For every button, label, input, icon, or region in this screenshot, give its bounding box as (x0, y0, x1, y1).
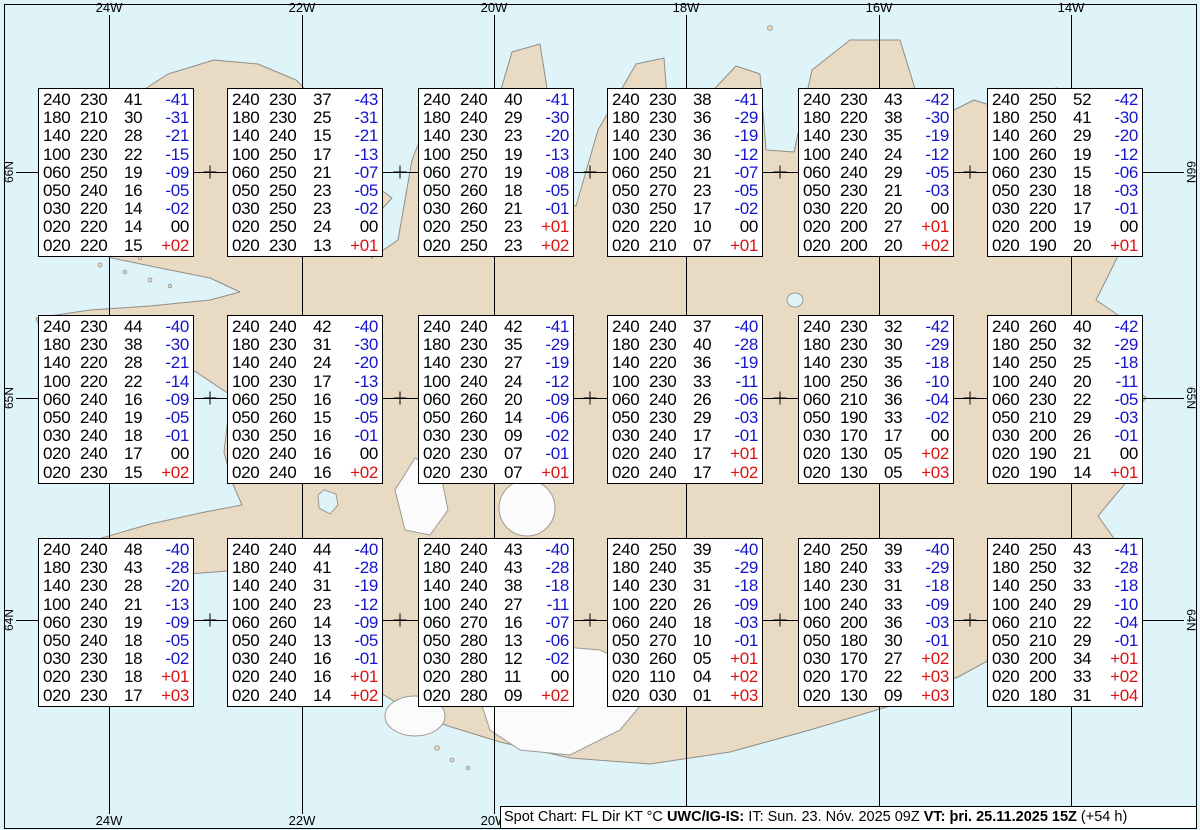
spot-table-row: 18023030-29 (803, 336, 949, 354)
spot-table-row: 14024015-21 (232, 127, 378, 145)
wind-direction: 210 (840, 391, 884, 409)
wind-direction: 240 (80, 391, 124, 409)
temperature-c: -07 (532, 614, 569, 632)
temperature-c: -29 (721, 109, 758, 127)
wind-direction: 230 (460, 336, 504, 354)
footer-text-segment: (+54 h) (1077, 809, 1127, 825)
graticule-cross-marker (204, 614, 217, 627)
wind-speed-kt: 16 (313, 427, 341, 445)
graticule-cross-marker (964, 614, 977, 627)
wind-direction: 220 (80, 218, 124, 236)
temperature-c: -18 (721, 577, 758, 595)
temperature-c: -29 (912, 336, 949, 354)
spot-table: 24023044-4018023038-3014022028-211002202… (38, 315, 194, 484)
temperature-c: -40 (532, 541, 569, 559)
wind-speed-kt: 21 (693, 164, 721, 182)
temperature-c: -28 (1101, 559, 1138, 577)
wind-speed-kt: 33 (693, 373, 721, 391)
spot-table-row: 18023035-29 (423, 336, 569, 354)
spot-table-row: 18023031-30 (232, 336, 378, 354)
flight-level: 060 (612, 391, 649, 409)
temperature-c: -05 (152, 409, 189, 427)
wind-direction: 240 (269, 668, 313, 686)
temperature-c: +02 (721, 464, 758, 482)
wind-speed-kt: 17 (124, 687, 152, 705)
flight-level: 030 (423, 650, 460, 668)
flight-level: 100 (612, 146, 649, 164)
wind-direction: 260 (649, 650, 693, 668)
wind-direction: 250 (460, 218, 504, 236)
wind-direction: 270 (460, 614, 504, 632)
flight-level: 050 (992, 409, 1029, 427)
flight-level: 050 (992, 632, 1029, 650)
longitude-label-top: 22W (287, 1, 318, 15)
temperature-c: +02 (341, 464, 378, 482)
spot-table-row: 10023022-15 (43, 146, 189, 164)
flight-level: 030 (43, 200, 80, 218)
spot-table-row: 24025039-40 (803, 541, 949, 559)
temperature-c: -04 (912, 391, 949, 409)
spot-table-row: 06026014-09 (232, 614, 378, 632)
temperature-c: -31 (152, 109, 189, 127)
spot-table-row: 03023018-02 (43, 650, 189, 668)
spot-table-row: 14023031-18 (612, 577, 758, 595)
wind-direction: 230 (460, 127, 504, 145)
wind-direction: 240 (840, 146, 884, 164)
wind-direction: 240 (840, 596, 884, 614)
temperature-c: -40 (721, 318, 758, 336)
wind-speed-kt: 17 (693, 464, 721, 482)
flight-level: 020 (803, 687, 840, 705)
wind-direction: 230 (1029, 391, 1073, 409)
temperature-c: -01 (721, 632, 758, 650)
flight-level: 100 (992, 373, 1029, 391)
wind-direction: 240 (269, 559, 313, 577)
wind-direction: 230 (1029, 164, 1073, 182)
flight-level: 020 (992, 445, 1029, 463)
temperature-c: -05 (532, 182, 569, 200)
spot-table-row: 05021029-01 (992, 632, 1138, 650)
spot-table-row: 03025023-02 (232, 200, 378, 218)
wind-speed-kt: 31 (693, 577, 721, 595)
temperature-c: -18 (532, 577, 569, 595)
flight-level: 180 (612, 336, 649, 354)
spot-table-row: 05023018-03 (992, 182, 1138, 200)
wind-speed-kt: 15 (1073, 164, 1101, 182)
spot-table-row: 06024016-09 (43, 391, 189, 409)
flight-level: 060 (43, 391, 80, 409)
temperature-c: -10 (1101, 596, 1138, 614)
spot-table-row: 02020020+02 (803, 237, 949, 255)
wind-speed-kt: 35 (693, 559, 721, 577)
wind-speed-kt: 17 (1073, 200, 1101, 218)
temperature-c: -01 (341, 650, 378, 668)
wind-direction: 240 (840, 164, 884, 182)
spot-table-row: 14024024-20 (232, 354, 378, 372)
flight-level: 100 (232, 596, 269, 614)
spot-table-row: 24023038-41 (612, 91, 758, 109)
graticule-cross-marker (774, 614, 787, 627)
flight-level: 030 (612, 650, 649, 668)
wind-speed-kt: 37 (313, 91, 341, 109)
spot-table: 24024040-4118024029-3014023023-201002501… (418, 88, 574, 257)
temperature-c: +02 (912, 650, 949, 668)
wind-direction: 210 (649, 237, 693, 255)
wind-speed-kt: 14 (124, 218, 152, 236)
spot-table: 24024048-4018023043-2814023028-201002402… (38, 538, 194, 707)
temperature-c: +02 (152, 237, 189, 255)
temperature-c: -31 (341, 109, 378, 127)
wind-direction: 250 (269, 164, 313, 182)
latitude-label-left: 65N (2, 386, 16, 410)
spot-table-row: 05023021-03 (803, 182, 949, 200)
footer-text-segment: VT: þri. 25.11.2025 15Z (924, 809, 1077, 825)
flight-level: 100 (43, 373, 80, 391)
temperature-c: -13 (532, 146, 569, 164)
spot-table-row: 03020034+01 (992, 650, 1138, 668)
spot-table-row: 03020026-01 (992, 427, 1138, 445)
flight-level: 240 (803, 318, 840, 336)
flight-level: 020 (992, 668, 1029, 686)
wind-speed-kt: 35 (884, 354, 912, 372)
temperature-c: +02 (152, 464, 189, 482)
temperature-c: -04 (1101, 614, 1138, 632)
spot-table-row: 10024033-09 (803, 596, 949, 614)
wind-speed-kt: 24 (504, 373, 532, 391)
flight-level: 180 (992, 109, 1029, 127)
spot-table: 24025039-4018024033-2914023031-181002403… (798, 538, 954, 707)
wind-direction: 230 (80, 464, 124, 482)
spot-table-row: 02013009+03 (803, 687, 949, 705)
wind-direction: 230 (460, 445, 504, 463)
spot-table: 24025043-4118025032-2814025033-181002402… (987, 538, 1143, 707)
flight-level: 180 (232, 336, 269, 354)
wind-direction: 230 (80, 559, 124, 577)
spot-table-row: 05028013-06 (423, 632, 569, 650)
flight-level: 020 (423, 218, 460, 236)
spot-table-row: 02024016+02 (232, 464, 378, 482)
temperature-c: +02 (532, 237, 569, 255)
wind-direction: 240 (840, 559, 884, 577)
flight-level: 100 (612, 373, 649, 391)
spot-table-row: 0201902100 (992, 445, 1138, 463)
wind-speed-kt: 18 (124, 632, 152, 650)
wind-direction: 260 (1029, 146, 1073, 164)
wind-direction: 210 (1029, 614, 1073, 632)
temperature-c: -14 (152, 373, 189, 391)
spot-table-row: 03026005+01 (612, 650, 758, 668)
wind-speed-kt: 21 (504, 200, 532, 218)
flight-level: 020 (232, 218, 269, 236)
wind-direction: 220 (80, 354, 124, 372)
wind-speed-kt: 16 (124, 391, 152, 409)
wind-speed-kt: 36 (693, 127, 721, 145)
spot-table-row: 03025017-02 (612, 200, 758, 218)
flight-level: 050 (803, 632, 840, 650)
wind-speed-kt: 17 (124, 445, 152, 463)
wind-speed-kt: 17 (313, 373, 341, 391)
wind-direction: 240 (80, 409, 124, 427)
temperature-c: -07 (721, 164, 758, 182)
spot-table-row: 24025052-42 (992, 91, 1138, 109)
flight-level: 030 (992, 650, 1029, 668)
wind-direction: 230 (649, 127, 693, 145)
spot-table-row: 0202201000 (612, 218, 758, 236)
spot-table-row: 14022036-19 (612, 354, 758, 372)
spot-table-row: 06021036-04 (803, 391, 949, 409)
wind-speed-kt: 29 (693, 409, 721, 427)
flight-level: 100 (803, 596, 840, 614)
wind-speed-kt: 36 (693, 109, 721, 127)
flight-level: 060 (43, 164, 80, 182)
wind-direction: 250 (649, 164, 693, 182)
spot-table-row: 02022015+02 (43, 237, 189, 255)
wind-speed-kt: 33 (884, 409, 912, 427)
wind-direction: 200 (1029, 427, 1073, 445)
temperature-c: -13 (341, 373, 378, 391)
spot-table-row: 24024042-40 (232, 318, 378, 336)
wind-direction: 250 (269, 182, 313, 200)
wind-speed-kt: 18 (693, 614, 721, 632)
spot-table-row: 24025043-41 (992, 541, 1138, 559)
wind-speed-kt: 18 (1073, 182, 1101, 200)
wind-direction: 240 (80, 182, 124, 200)
wind-direction: 260 (269, 409, 313, 427)
wind-speed-kt: 17 (693, 427, 721, 445)
temperature-c: 00 (1101, 218, 1138, 236)
spot-table-row: 14023031-18 (803, 577, 949, 595)
wind-direction: 280 (460, 650, 504, 668)
flight-level: 140 (992, 354, 1029, 372)
latitude-label-right: 64N (1184, 608, 1198, 632)
temperature-c: 00 (912, 200, 949, 218)
temperature-c: -11 (1101, 373, 1138, 391)
temperature-c: -21 (152, 127, 189, 145)
spot-table-row: 24024044-40 (232, 541, 378, 559)
flight-level: 030 (232, 650, 269, 668)
wind-direction: 250 (1029, 91, 1073, 109)
flight-level: 060 (992, 164, 1029, 182)
wind-speed-kt: 16 (504, 614, 532, 632)
temperature-c: -42 (912, 91, 949, 109)
wind-speed-kt: 22 (124, 146, 152, 164)
spot-table-row: 10024029-10 (992, 596, 1138, 614)
graticule-cross-marker (584, 166, 597, 179)
temperature-c: -42 (1101, 318, 1138, 336)
spot-table-row: 10023033-11 (612, 373, 758, 391)
latitude-label-left: 66N (2, 160, 16, 184)
flight-level: 140 (43, 577, 80, 595)
temperature-c: -09 (532, 391, 569, 409)
temperature-c: -19 (532, 354, 569, 372)
spot-table-row: 02021007+01 (612, 237, 758, 255)
wind-speed-kt: 16 (313, 668, 341, 686)
wind-speed-kt: 16 (313, 391, 341, 409)
wind-direction: 250 (840, 541, 884, 559)
wind-speed-kt: 29 (504, 109, 532, 127)
temperature-c: 00 (721, 218, 758, 236)
wind-speed-kt: 29 (1073, 127, 1101, 145)
temperature-c: -03 (1101, 182, 1138, 200)
temperature-c: -41 (721, 91, 758, 109)
wind-speed-kt: 16 (313, 464, 341, 482)
flight-level: 030 (803, 427, 840, 445)
latitude-label-right: 65N (1184, 386, 1198, 410)
wind-speed-kt: 05 (884, 464, 912, 482)
spot-table-row: 06023015-06 (992, 164, 1138, 182)
temperature-c: -05 (1101, 391, 1138, 409)
wind-speed-kt: 19 (124, 614, 152, 632)
wind-direction: 240 (460, 577, 504, 595)
spot-table: 24026040-4218025032-2914025025-181002402… (987, 315, 1143, 484)
longitude-label-top: 24W (94, 1, 125, 15)
flight-level: 100 (992, 146, 1029, 164)
flight-level: 140 (992, 577, 1029, 595)
wind-direction: 230 (840, 318, 884, 336)
flight-level: 180 (43, 559, 80, 577)
wind-speed-kt: 37 (693, 318, 721, 336)
flight-level: 050 (803, 409, 840, 427)
flight-level: 100 (423, 146, 460, 164)
temperature-c: -19 (912, 127, 949, 145)
temperature-c: -19 (721, 127, 758, 145)
wind-speed-kt: 48 (124, 541, 152, 559)
flight-level: 100 (43, 596, 80, 614)
spot-table-row: 24024037-40 (612, 318, 758, 336)
spot-table-row: 18025032-29 (992, 336, 1138, 354)
temperature-c: -06 (1101, 164, 1138, 182)
temperature-c: -40 (152, 541, 189, 559)
spot-table-row: 06024018-03 (612, 614, 758, 632)
wind-speed-kt: 13 (504, 632, 532, 650)
spot-table-row: 0202001900 (992, 218, 1138, 236)
wind-speed-kt: 13 (313, 237, 341, 255)
flight-level: 050 (43, 182, 80, 200)
wind-direction: 130 (840, 445, 884, 463)
wind-direction: 240 (649, 559, 693, 577)
wind-speed-kt: 14 (313, 614, 341, 632)
temperature-c: +01 (532, 464, 569, 482)
wind-speed-kt: 16 (124, 182, 152, 200)
wind-direction: 230 (460, 464, 504, 482)
wind-direction: 240 (460, 559, 504, 577)
temperature-c: -09 (912, 596, 949, 614)
wind-speed-kt: 14 (504, 409, 532, 427)
wind-speed-kt: 25 (1073, 354, 1101, 372)
flight-level: 050 (803, 182, 840, 200)
temperature-c: -29 (1101, 336, 1138, 354)
spot-table-row: 0202502400 (232, 218, 378, 236)
flight-level: 180 (43, 336, 80, 354)
temperature-c: -03 (1101, 409, 1138, 427)
wind-speed-kt: 23 (693, 182, 721, 200)
wind-direction: 240 (649, 146, 693, 164)
wind-direction: 250 (1029, 541, 1073, 559)
temperature-c: -12 (912, 146, 949, 164)
spot-table-row: 05027023-05 (612, 182, 758, 200)
spot-table-row: 03025016-01 (232, 427, 378, 445)
wind-speed-kt: 22 (1073, 614, 1101, 632)
temperature-c: -11 (721, 373, 758, 391)
wind-speed-kt: 39 (884, 541, 912, 559)
temperature-c: -12 (532, 373, 569, 391)
spot-table-row: 06024029-05 (803, 164, 949, 182)
spot-table-row: 18024035-29 (612, 559, 758, 577)
wind-direction: 230 (840, 354, 884, 372)
temperature-c: -02 (912, 409, 949, 427)
wind-direction: 200 (840, 614, 884, 632)
spot-table-row: 02003001+03 (612, 687, 758, 705)
wind-direction: 200 (1029, 218, 1073, 236)
spot-table-row: 02013005+03 (803, 464, 949, 482)
spot-table-row: 02023015+02 (43, 464, 189, 482)
wind-speed-kt: 09 (504, 427, 532, 445)
wind-direction: 240 (269, 596, 313, 614)
wind-speed-kt: 22 (884, 668, 912, 686)
spot-table-row: 03023009-02 (423, 427, 569, 445)
wind-speed-kt: 20 (884, 237, 912, 255)
wind-speed-kt: 21 (313, 164, 341, 182)
flight-level: 060 (423, 391, 460, 409)
spot-table-row: 02025023+02 (423, 237, 569, 255)
temperature-c: -10 (912, 373, 949, 391)
temperature-c: -20 (1101, 127, 1138, 145)
temperature-c: -21 (341, 127, 378, 145)
spot-table-row: 14023035-18 (803, 354, 949, 372)
flight-level: 060 (992, 391, 1029, 409)
spot-table: 24023043-4218022038-3014023035-191002402… (798, 88, 954, 257)
flight-level: 060 (423, 164, 460, 182)
spot-table-row: 10024024-12 (803, 146, 949, 164)
wind-direction: 210 (1029, 409, 1073, 427)
spot-table-row: 14023035-19 (803, 127, 949, 145)
wind-direction: 250 (840, 373, 884, 391)
flight-level: 240 (423, 91, 460, 109)
wind-direction: 260 (460, 391, 504, 409)
flight-level: 030 (803, 200, 840, 218)
flight-level: 030 (612, 200, 649, 218)
flight-level: 180 (612, 559, 649, 577)
spot-table-row: 05025023-05 (232, 182, 378, 200)
wind-direction: 220 (80, 373, 124, 391)
flight-level: 060 (232, 614, 269, 632)
spot-table-row: 10024023-12 (232, 596, 378, 614)
spot-table-row: 02019020+01 (992, 237, 1138, 255)
flight-level: 020 (43, 237, 80, 255)
flight-level: 020 (232, 237, 269, 255)
wind-direction: 240 (1029, 373, 1073, 391)
spot-table-row: 18023038-30 (43, 336, 189, 354)
wind-speed-kt: 16 (313, 650, 341, 668)
spot-table-row: 14024031-19 (232, 577, 378, 595)
wind-direction: 240 (460, 541, 504, 559)
flight-level: 100 (423, 373, 460, 391)
temperature-c: -02 (721, 200, 758, 218)
flight-level: 050 (423, 409, 460, 427)
wind-speed-kt: 11 (504, 668, 532, 686)
wind-direction: 260 (460, 409, 504, 427)
flight-level: 020 (803, 218, 840, 236)
wind-direction: 230 (80, 650, 124, 668)
spot-table-row: 14026029-20 (992, 127, 1138, 145)
spot-table-row: 02023007+01 (423, 464, 569, 482)
spot-table-row: 06025021-07 (612, 164, 758, 182)
wind-speed-kt: 30 (693, 146, 721, 164)
wind-direction: 230 (80, 318, 124, 336)
temperature-c: -19 (341, 577, 378, 595)
graticule-cross-marker (964, 392, 977, 405)
wind-speed-kt: 14 (313, 687, 341, 705)
